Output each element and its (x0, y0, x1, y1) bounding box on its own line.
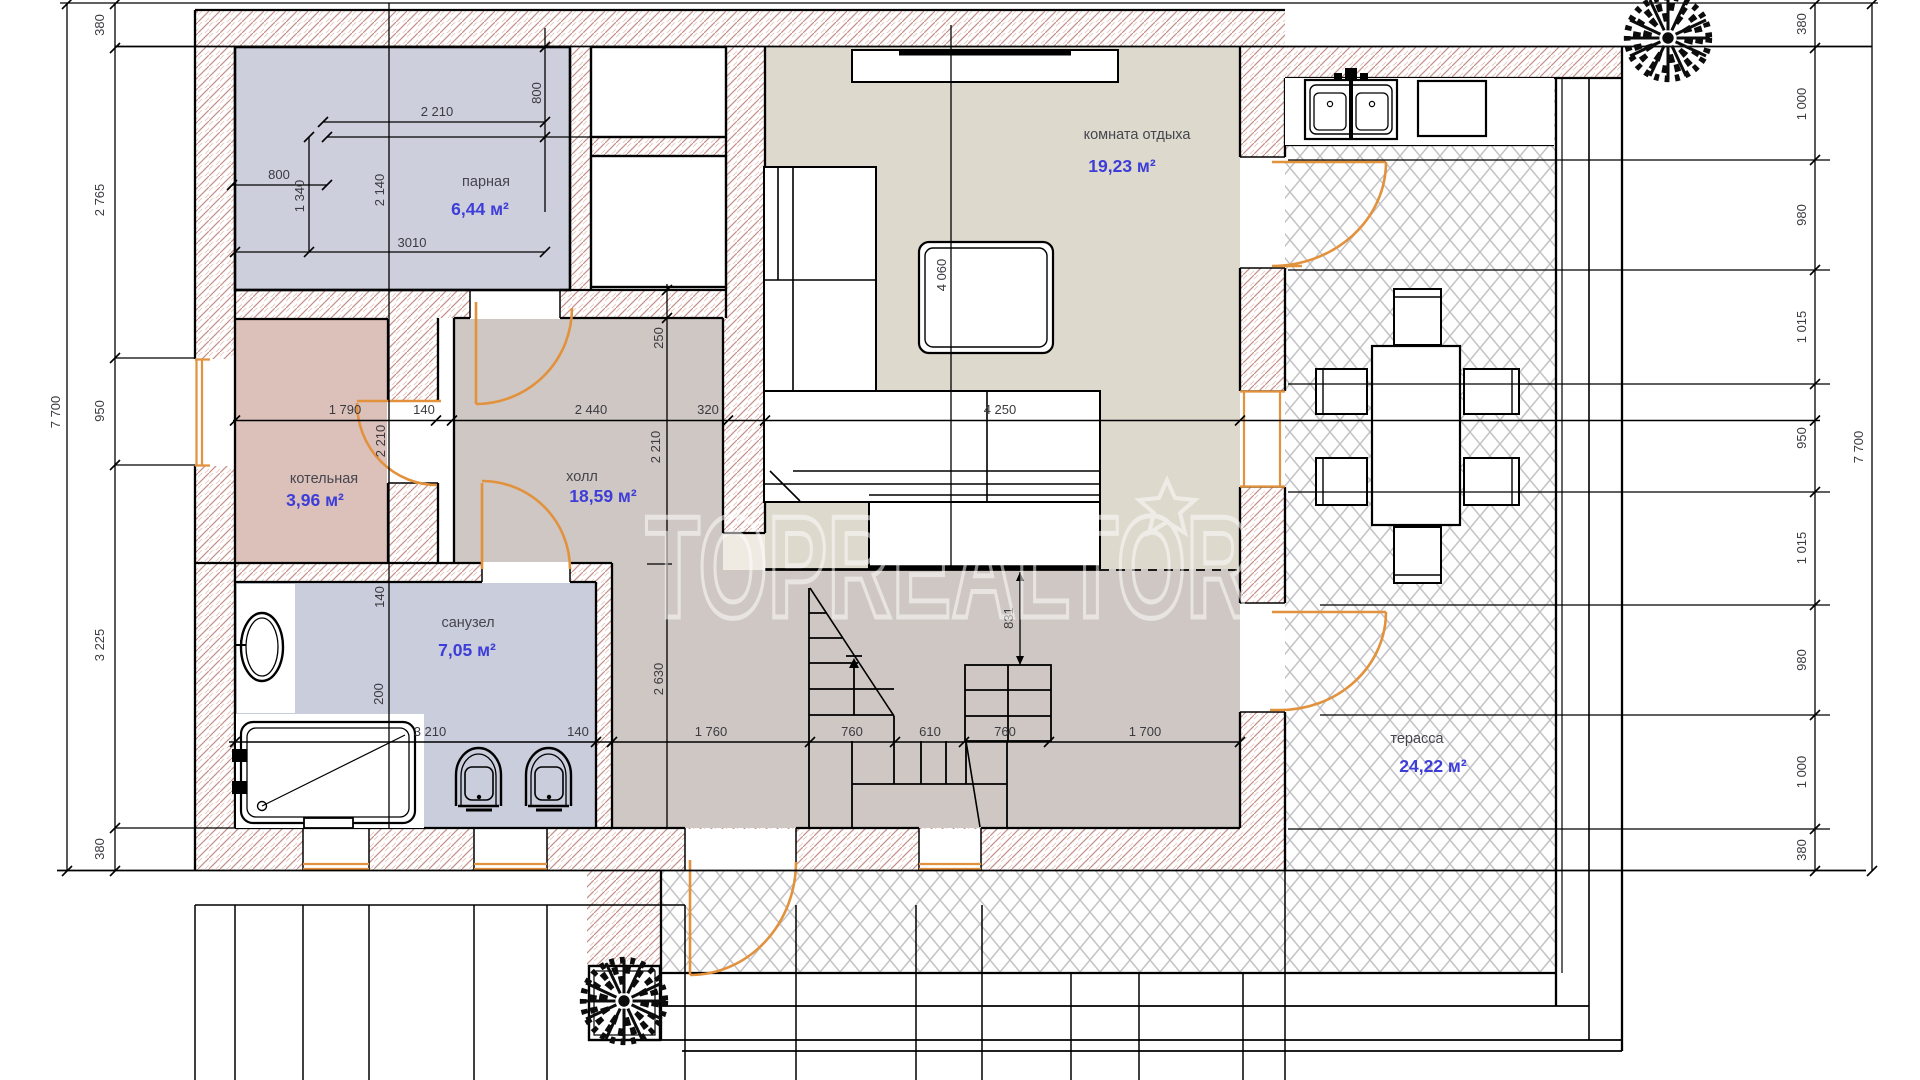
svg-text:140: 140 (413, 402, 435, 417)
svg-text:800: 800 (268, 167, 290, 182)
svg-text:380: 380 (92, 14, 107, 36)
svg-text:7,05 м²: 7,05 м² (438, 640, 496, 660)
svg-text:1 760: 1 760 (695, 724, 728, 739)
svg-text:380: 380 (92, 838, 107, 860)
svg-text:380: 380 (1794, 13, 1809, 35)
svg-text:2 210: 2 210 (373, 425, 388, 458)
svg-text:4 250: 4 250 (984, 402, 1017, 417)
svg-text:2 140: 2 140 (372, 174, 387, 207)
svg-text:3010: 3010 (398, 235, 427, 250)
svg-text:3,96 м²: 3,96 м² (286, 490, 344, 510)
svg-text:950: 950 (92, 400, 107, 422)
svg-text:610: 610 (919, 724, 941, 739)
svg-text:1 015: 1 015 (1794, 532, 1809, 565)
svg-text:6,44 м²: 6,44 м² (451, 199, 509, 219)
svg-text:парная: парная (462, 174, 510, 190)
svg-text:1 340: 1 340 (292, 180, 307, 213)
svg-text:1 700: 1 700 (1129, 724, 1162, 739)
svg-text:2 765: 2 765 (92, 184, 107, 217)
svg-text:760: 760 (994, 724, 1016, 739)
svg-text:250: 250 (651, 327, 666, 349)
svg-text:140: 140 (567, 724, 589, 739)
svg-text:2 210: 2 210 (421, 104, 454, 119)
svg-text:7 700: 7 700 (1851, 431, 1866, 464)
svg-text:1 000: 1 000 (1794, 88, 1809, 121)
svg-text:3 210: 3 210 (414, 724, 447, 739)
svg-text:4 060: 4 060 (934, 259, 949, 292)
svg-text:140: 140 (372, 586, 387, 608)
svg-text:980: 980 (1794, 649, 1809, 671)
svg-text:1 790: 1 790 (329, 402, 362, 417)
svg-text:комната отдыха: комната отдыха (1084, 127, 1192, 143)
svg-text:3 225: 3 225 (92, 629, 107, 662)
svg-text:TOPREALTOR: TOPREALTOR (646, 486, 1251, 648)
svg-text:санузел: санузел (441, 615, 494, 631)
svg-text:холл: холл (566, 469, 598, 485)
svg-text:19,23 м²: 19,23 м² (1088, 156, 1156, 176)
svg-text:1 000: 1 000 (1794, 756, 1809, 789)
svg-text:7 700: 7 700 (48, 396, 63, 429)
svg-text:терасса: терасса (1390, 731, 1444, 747)
svg-text:24,22 м²: 24,22 м² (1399, 756, 1467, 776)
svg-text:18,59 м²: 18,59 м² (569, 486, 637, 506)
svg-text:320: 320 (697, 402, 719, 417)
svg-text:1 015: 1 015 (1794, 311, 1809, 344)
svg-text:980: 980 (1794, 204, 1809, 226)
svg-text:380: 380 (1794, 839, 1809, 861)
svg-text:950: 950 (1794, 427, 1809, 449)
svg-text:котельная: котельная (290, 471, 358, 487)
svg-text:2 440: 2 440 (575, 402, 608, 417)
svg-text:800: 800 (529, 82, 544, 104)
svg-text:2 210: 2 210 (648, 431, 663, 464)
svg-text:2 630: 2 630 (651, 663, 666, 696)
svg-text:760: 760 (841, 724, 863, 739)
svg-text:200: 200 (371, 683, 386, 705)
